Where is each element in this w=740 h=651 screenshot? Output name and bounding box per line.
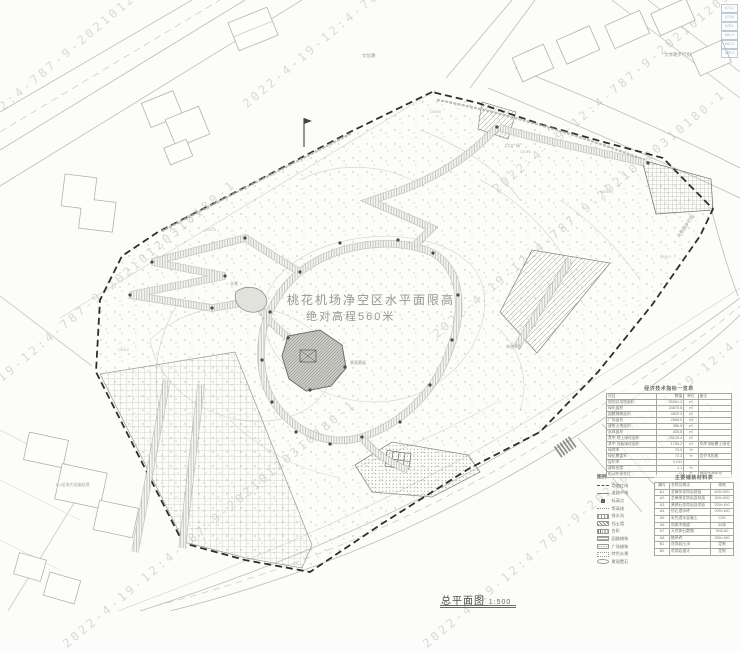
legend-symbol-icon bbox=[597, 529, 609, 534]
spot-elevation: 1009.8 bbox=[430, 110, 441, 114]
table-row: A3 黄锈石花岗岩自然面 200×100 bbox=[655, 502, 734, 509]
corner-mark-box: 682.9 bbox=[721, 40, 738, 49]
table-row: A5 彩色透水混凝土 C25 bbox=[655, 515, 734, 522]
legend-item: 园路铺装 bbox=[597, 535, 651, 543]
area-label-rest: 休息平台 bbox=[506, 344, 522, 350]
economic-table-title: 经济技术指标一览表 bbox=[606, 385, 732, 392]
legend-symbol-icon bbox=[601, 499, 605, 503]
legend-symbol-icon bbox=[597, 508, 609, 509]
area-label-pond: 水景 bbox=[230, 281, 238, 287]
spot-elevation: 1015.2 bbox=[600, 190, 611, 194]
area-label-gallery: 景观廊架 bbox=[350, 360, 366, 366]
table-row: A6 防腐木栈道 30厚 bbox=[655, 522, 734, 529]
legend-symbol-icon bbox=[597, 514, 609, 519]
table-row: 编号 名称及做法 规格 bbox=[655, 483, 734, 490]
legend-item: 景观置石 bbox=[597, 558, 651, 566]
airport-clearance-note-line2: 绝对高程560米 bbox=[306, 308, 395, 324]
legend-item: 挡土墙 bbox=[597, 520, 651, 528]
legend-item: 特色水景 bbox=[597, 550, 651, 558]
corner-mark-box: 678.1 bbox=[721, 22, 738, 31]
flag-pole bbox=[304, 118, 312, 147]
street-label-top-right: 文体路步行街 bbox=[664, 52, 691, 58]
title-underline bbox=[440, 605, 516, 606]
corner-mark-box: 673.2 bbox=[721, 4, 738, 13]
legend-item: 标高点 bbox=[597, 497, 651, 505]
spot-elevation: 1013.6 bbox=[520, 150, 531, 154]
legend-item: 排水沟 bbox=[597, 512, 651, 520]
legend-symbol-icon bbox=[597, 544, 609, 549]
legend-symbol-icon bbox=[597, 536, 609, 541]
legend-item: 道路中线 bbox=[597, 490, 651, 498]
legend-symbol-icon bbox=[597, 521, 609, 526]
material-table-title: 主要铺装材料表 bbox=[654, 474, 734, 481]
economic-indicator-table: 经济技术指标一览表 项目 数值 单位 备注 规划总用地面积 35261.2 ㎡ … bbox=[606, 385, 732, 478]
legend-symbol-icon bbox=[597, 485, 609, 486]
zebra-crossing bbox=[554, 436, 577, 457]
legend-symbol-icon bbox=[597, 552, 609, 557]
legend-panel: 图例 用地红线 道路中线 标高点 等高线 bbox=[597, 474, 651, 566]
corner-mark-box: 675.8 bbox=[721, 13, 738, 22]
spot-elevation: 1021.5 bbox=[205, 228, 216, 232]
table-row: A8 植草砖 250×190 bbox=[655, 535, 734, 542]
legend-title: 图例 bbox=[597, 474, 651, 480]
corner-mark-box: 680.4 bbox=[721, 31, 738, 40]
legend-symbol-icon bbox=[597, 493, 609, 494]
area-label-power-block: 8-2区电力设施信息 bbox=[56, 482, 90, 488]
corner-mark-box: 685.3 bbox=[721, 49, 738, 58]
legend-item: 等高线 bbox=[597, 505, 651, 513]
legend-item: 台阶 bbox=[597, 528, 651, 536]
table-row: A1 芝麻灰花岗岩烧面 600×300 bbox=[655, 489, 734, 496]
table-row: A4 仿石透水砖 200×100 bbox=[655, 509, 734, 516]
table-row: B2 花岗岩道牙 定制 bbox=[655, 548, 734, 555]
street-label-top: 文化路 bbox=[362, 53, 376, 59]
title-underline bbox=[440, 607, 516, 608]
airport-clearance-note-line1: 桃花机场净空区水平面限高 bbox=[287, 291, 455, 308]
table-row: B1 花岗岩压顶 定制 bbox=[655, 542, 734, 549]
table-row: A7 天然卵石散铺 Φ40-60 bbox=[655, 529, 734, 536]
legend-item: 广场铺装 bbox=[597, 543, 651, 551]
area-label-entrance: 入口广场 bbox=[504, 143, 520, 149]
table-row: A2 芝麻黑花岗岩荔枝面 300×300 bbox=[655, 496, 734, 503]
legend-symbol-icon bbox=[597, 559, 609, 564]
material-table: 主要铺装材料表 编号 名称及做法 规格 A1 芝麻灰花岗岩烧面 600×300 … bbox=[654, 474, 734, 556]
legend-item: 用地红线 bbox=[597, 482, 651, 490]
spot-elevation: 1018.4 bbox=[660, 255, 671, 259]
spot-elevation: 1016.0 bbox=[118, 348, 129, 352]
site-plan-drawing: { "watermark": { "full": "2022-4-19-12:4… bbox=[0, 0, 740, 611]
